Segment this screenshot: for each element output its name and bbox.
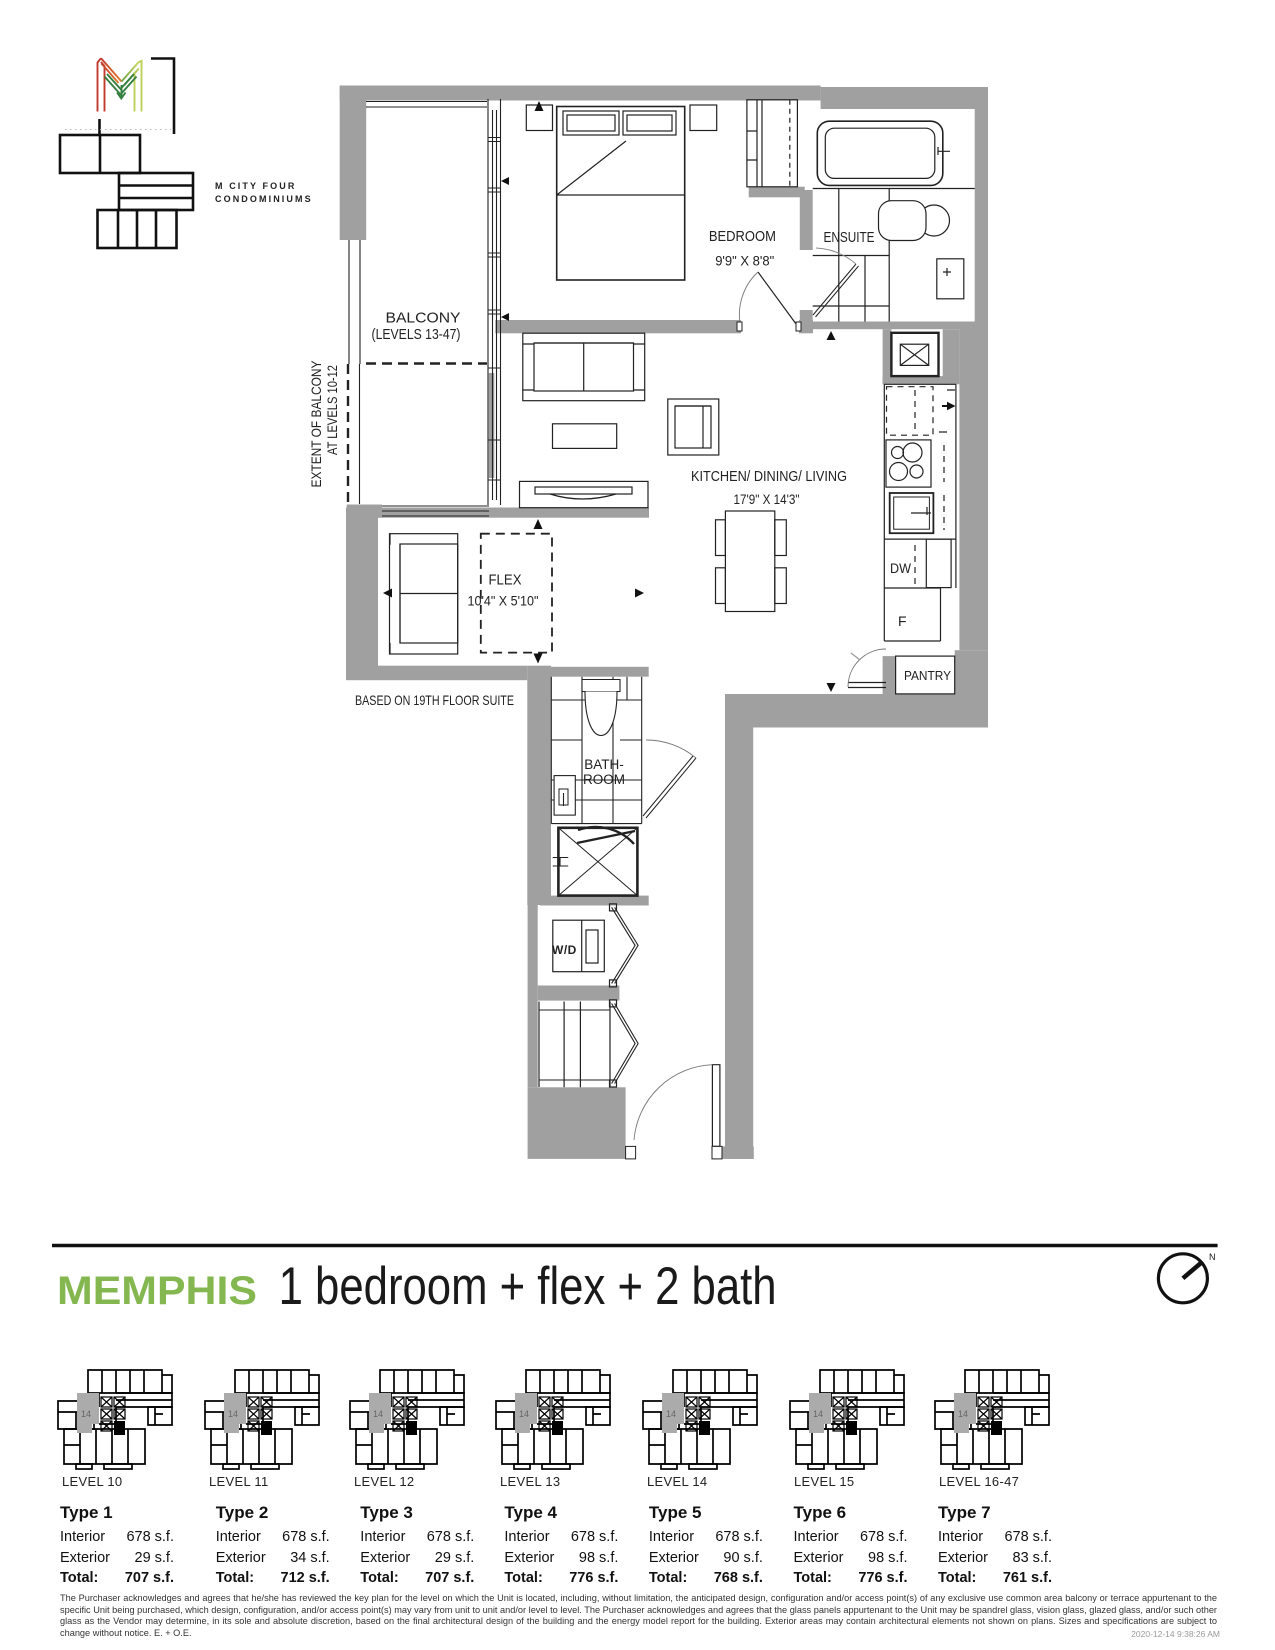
svg-text:PANTRY: PANTRY: [904, 668, 951, 683]
svg-text:AT LEVELS 10-12: AT LEVELS 10-12: [325, 365, 340, 455]
svg-text:EXTENT OF BALCONY: EXTENT OF BALCONY: [309, 361, 324, 488]
svg-text:10'4" X 5'10": 10'4" X 5'10": [468, 593, 539, 609]
svg-text:DW: DW: [890, 560, 912, 576]
svg-text:KITCHEN/ DINING/ LIVING: KITCHEN/ DINING/ LIVING: [691, 468, 847, 485]
svg-text:1 bedroom + flex + 2 bath: 1 bedroom + flex + 2 bath: [279, 1257, 777, 1316]
svg-text:17'9" X 14'3": 17'9" X 14'3": [734, 491, 800, 507]
svg-text:FLEX: FLEX: [489, 572, 522, 589]
svg-text:M CITY FOUR: M CITY FOUR: [215, 181, 296, 191]
svg-text:(LEVELS 13-47): (LEVELS 13-47): [372, 326, 461, 343]
svg-text:BASED ON 19TH FLOOR SUITE: BASED ON 19TH FLOOR SUITE: [355, 692, 514, 708]
svg-text:ENSUITE: ENSUITE: [824, 229, 875, 246]
svg-text:W/D: W/D: [552, 943, 577, 957]
svg-text:MEMPHIS: MEMPHIS: [57, 1269, 257, 1313]
svg-text:BATH-: BATH-: [584, 757, 624, 772]
svg-text:BALCONY: BALCONY: [386, 310, 461, 327]
svg-text:CONDOMINIUMS: CONDOMINIUMS: [215, 194, 313, 204]
svg-text:N: N: [1209, 1252, 1216, 1262]
svg-text:BEDROOM: BEDROOM: [709, 228, 776, 245]
svg-text:ROOM: ROOM: [583, 772, 625, 787]
svg-text:F: F: [898, 613, 907, 629]
svg-text:9'9" X 8'8": 9'9" X 8'8": [715, 253, 774, 269]
